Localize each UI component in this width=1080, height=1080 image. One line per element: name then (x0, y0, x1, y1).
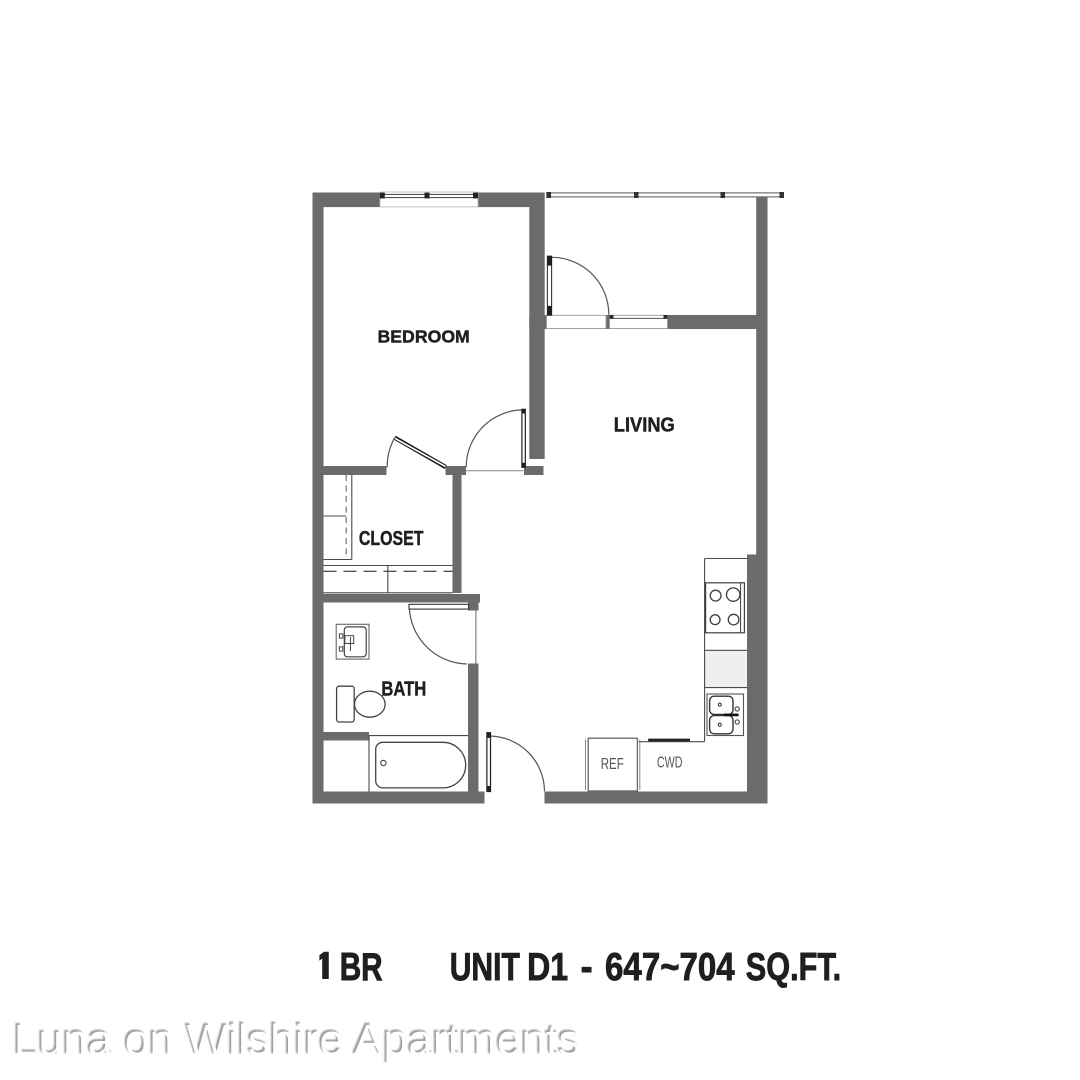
svg-text:BATH: BATH (381, 677, 426, 700)
svg-text:UNIT: UNIT (450, 945, 520, 989)
svg-text:BR: BR (340, 946, 383, 989)
svg-text:Luna on Wilshire Apartments: Luna on Wilshire Apartments (14, 1016, 581, 1065)
svg-text:647~704: 647~704 (605, 944, 735, 988)
svg-text:REF: REF (601, 754, 624, 772)
svg-text:SQ.FT.: SQ.FT. (746, 946, 841, 989)
svg-text:LIVING: LIVING (614, 415, 675, 437)
svg-text:CWD: CWD (657, 753, 683, 771)
svg-text:-: - (581, 945, 593, 989)
svg-text:CLOSET: CLOSET (359, 527, 424, 549)
svg-text:D1: D1 (527, 945, 568, 989)
svg-text:BEDROOM: BEDROOM (378, 326, 470, 346)
